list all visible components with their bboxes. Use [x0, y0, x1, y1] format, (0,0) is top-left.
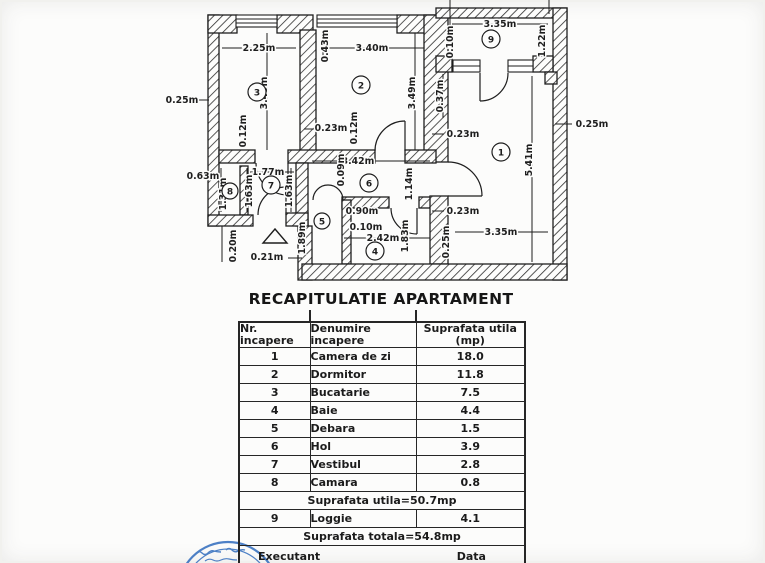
dim-label: 0.43m	[320, 30, 331, 63]
subtotal-text: Suprafata utila=50.7mp	[239, 492, 525, 510]
room-6-number: 6	[366, 180, 372, 190]
room-3-number: 3	[254, 89, 260, 99]
row-name: Baie	[310, 402, 416, 420]
table-row: 6 Hol 3.9	[239, 438, 525, 456]
row-area: 18.0	[416, 348, 525, 366]
dim-label: 5.41m	[524, 144, 535, 177]
dim-label: 1.22m	[537, 25, 548, 58]
window	[236, 15, 277, 27]
bedroom-door-arc	[375, 121, 405, 151]
room-2-number: 2	[358, 82, 364, 92]
row-area: 4.4	[416, 402, 525, 420]
wall-segment	[553, 8, 567, 280]
header-nr-line2: incapere	[240, 335, 310, 347]
row-area: 1.5	[416, 420, 525, 438]
row-name: Hol	[310, 438, 416, 456]
table-row: 8 Camara 0.8	[239, 474, 525, 492]
table-row: 1 Camera de zi 18.0	[239, 348, 525, 366]
row-name: Camera de zi	[310, 348, 416, 366]
dim-label: 0.90m	[346, 206, 379, 217]
table-header-row: Nr. incapere Denumire incapere Suprafata…	[239, 322, 525, 348]
row-area: 7.5	[416, 384, 525, 402]
dim-label: 3.35m	[485, 227, 518, 238]
row-name: Camara	[310, 474, 416, 492]
dim-label: 0.10m	[350, 222, 383, 233]
dim-label: 0.12m	[238, 115, 249, 148]
data-label: Data	[457, 550, 486, 563]
total-row: Suprafata totala=54.8mp	[239, 528, 525, 546]
row-area: 4.1	[416, 510, 525, 528]
dim-label: 0.25m	[441, 226, 452, 259]
room-7-number: 7	[268, 182, 274, 192]
scanned-floorplan-sheet: 2.25m 3.40m 0.43m 3.35m 0.10m 1.22m 0.25…	[0, 0, 765, 563]
row-area: 0.8	[416, 474, 525, 492]
wall-segment	[302, 264, 567, 280]
header-suprafata: Suprafata utila (mp)	[416, 322, 525, 348]
table-row: 7 Vestibul 2.8	[239, 456, 525, 474]
row-name: Bucatarie	[310, 384, 416, 402]
dim-label: 0.12m	[349, 112, 360, 145]
closet-double-door-arc	[313, 185, 328, 200]
header-nr: Nr. incapere	[239, 322, 310, 348]
subtotal-row: Suprafata utila=50.7mp	[239, 492, 525, 510]
dim-label: 0.37m	[435, 80, 446, 113]
dim-label: 0.23m	[447, 206, 480, 217]
dim-label: 1.63m	[244, 175, 255, 208]
wall-segment	[300, 30, 316, 152]
row-nr: 8	[239, 474, 310, 492]
total-text: Suprafata totala=54.8mp	[239, 528, 525, 546]
header-den-line2: incapere	[311, 335, 416, 347]
row-area: 3.9	[416, 438, 525, 456]
header-sup-line2: (mp)	[417, 335, 525, 347]
dim-label: 2.25m	[243, 43, 276, 54]
room-8-number: 8	[227, 188, 233, 198]
table-row: 3 Bucatarie 7.5	[239, 384, 525, 402]
window	[317, 15, 397, 27]
room-1-number: 1	[498, 149, 504, 159]
row-nr: 3	[239, 384, 310, 402]
row-nr: 9	[239, 510, 310, 528]
livingroom-door-arc	[448, 162, 482, 196]
table-row-loggia: 9 Loggie 4.1	[239, 510, 525, 528]
room-5-number: 5	[319, 218, 325, 228]
wall-segment	[436, 8, 567, 18]
dim-label: 3.35m	[484, 19, 517, 30]
dim-label: 0.23m	[315, 123, 348, 134]
room-9-number: 9	[488, 36, 494, 46]
dim-label: 0.21m	[251, 252, 284, 263]
executant-label: Executant	[258, 550, 320, 563]
stamp-text-squiggle	[205, 559, 237, 561]
dim-label: 0.20m	[228, 230, 239, 263]
dim-label: 3.40m	[356, 43, 389, 54]
dim-label: 3.49m	[407, 77, 418, 110]
entrance-marker	[263, 229, 287, 243]
loggia-door-arc	[480, 73, 508, 101]
header-denumire: Denumire incapere	[310, 322, 416, 348]
dim-label: 0.25m	[166, 95, 199, 106]
dim-label: 1.63m	[284, 175, 295, 208]
dim-label: 1.14m	[404, 168, 415, 201]
row-name: Dormitor	[310, 366, 416, 384]
row-nr: 1	[239, 348, 310, 366]
wall-segment	[219, 150, 255, 163]
row-area: 11.8	[416, 366, 525, 384]
page-title: RECAPITULATIE APARTAMENT	[232, 290, 530, 308]
row-nr: 2	[239, 366, 310, 384]
dim-label: 0.09m	[336, 154, 347, 187]
executant-cell: Executant Data	[239, 546, 525, 563]
row-nr: 6	[239, 438, 310, 456]
row-name: Debara	[310, 420, 416, 438]
dimension-lines	[198, 0, 572, 262]
dim-label: 0.63m	[187, 171, 220, 182]
dim-label: 0.10m	[445, 26, 456, 59]
table-row: 4 Baie 4.4	[239, 402, 525, 420]
dim-label: 0.25m	[576, 119, 609, 130]
executant-row: Executant Data	[239, 546, 525, 563]
wall-segment	[208, 215, 253, 226]
recap-table: Nr. incapere Denumire incapere Suprafata…	[238, 321, 524, 563]
row-nr: 4	[239, 402, 310, 420]
wall-segment	[545, 72, 557, 84]
row-name: Loggie	[310, 510, 416, 528]
table-row: 2 Dormitor 11.8	[239, 366, 525, 384]
row-nr: 5	[239, 420, 310, 438]
row-name: Vestibul	[310, 456, 416, 474]
wall-segment	[533, 56, 553, 72]
dim-label: 1.83m	[400, 220, 411, 253]
room-4-number: 4	[372, 248, 378, 258]
wall-segment	[208, 15, 237, 33]
dim-label: 1.89m	[297, 222, 308, 255]
row-nr: 7	[239, 456, 310, 474]
row-area: 2.8	[416, 456, 525, 474]
table-row: 5 Debara 1.5	[239, 420, 525, 438]
dim-label: 0.23m	[447, 129, 480, 140]
